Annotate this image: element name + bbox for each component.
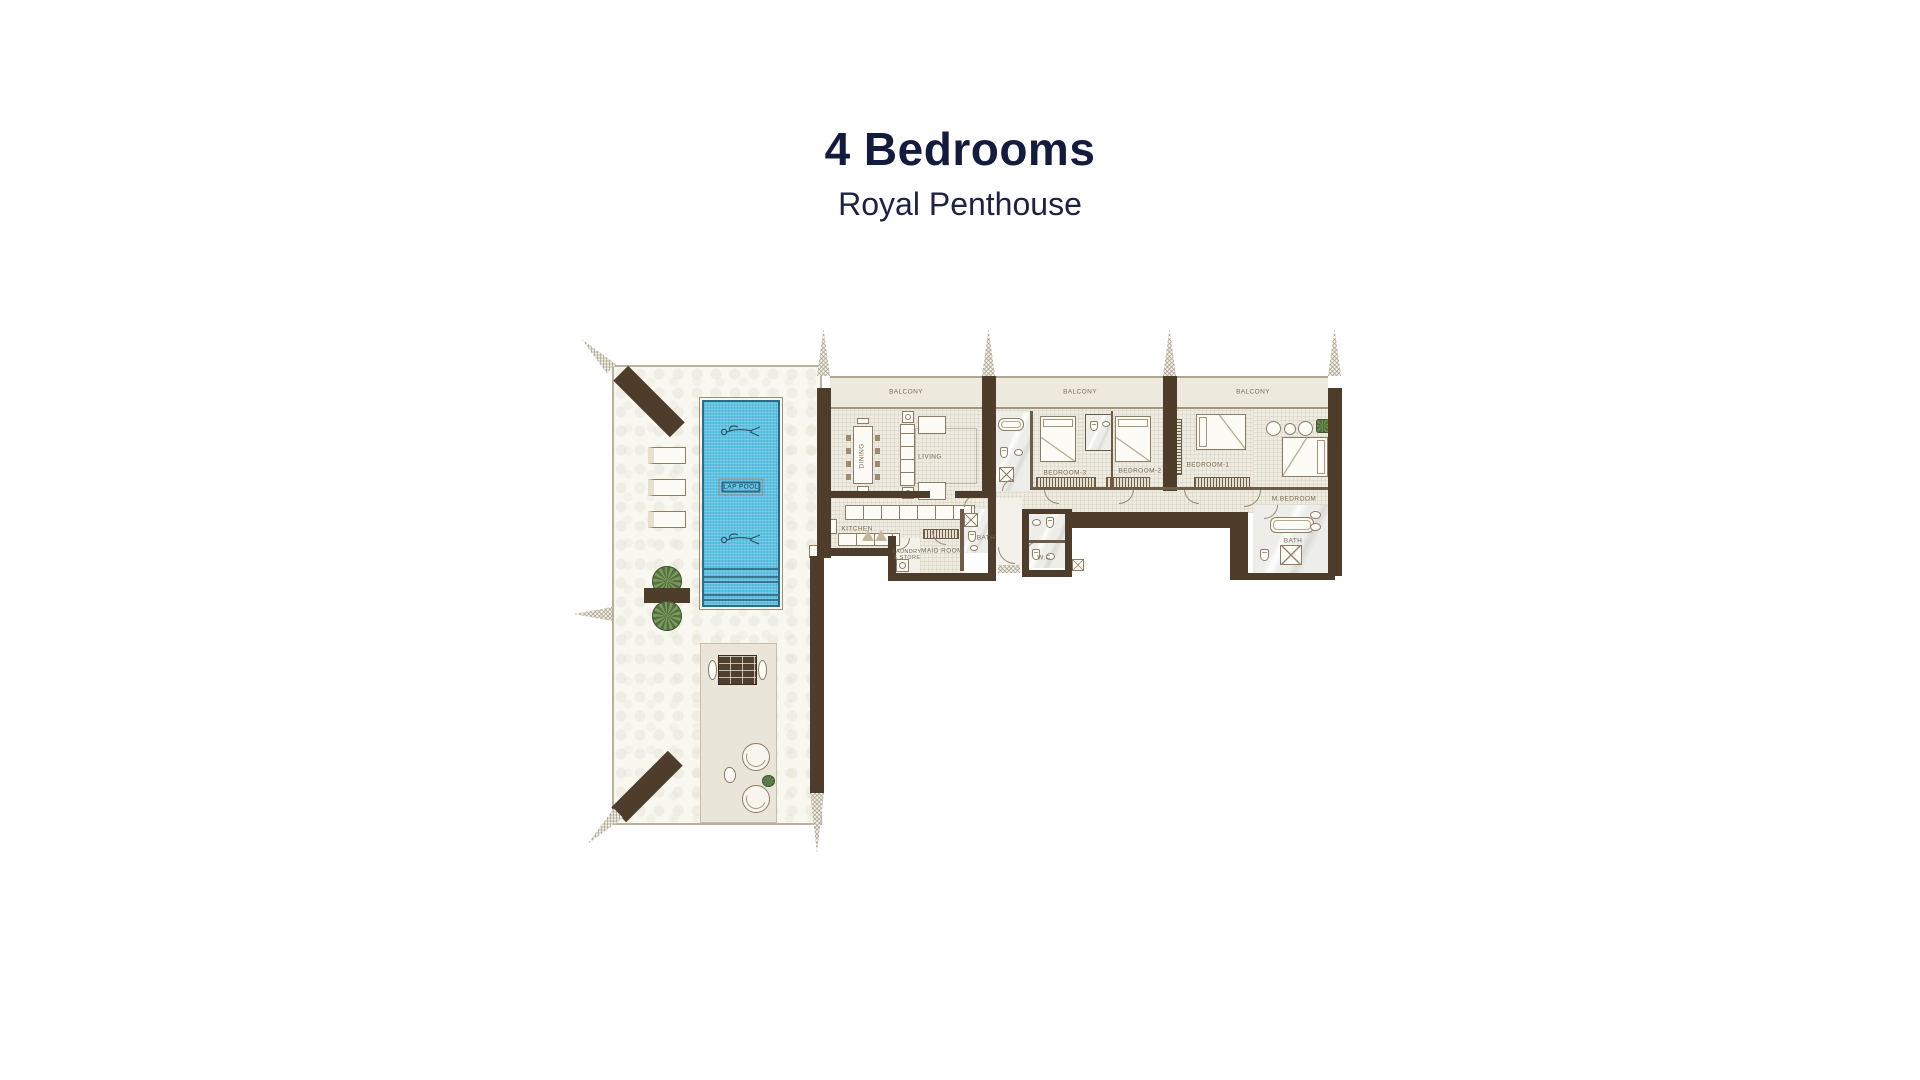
outdoor-dining-table — [718, 655, 757, 685]
swimmer-icon — [716, 530, 764, 550]
label-dining: DINING — [859, 443, 866, 468]
lap-pool — [702, 400, 780, 607]
wall-wc-divider — [1029, 540, 1065, 543]
sink-master — [1310, 511, 1321, 519]
label-wc: W.C — [1037, 555, 1050, 562]
label-bedroom3: BEDROOM-3 — [1044, 470, 1087, 477]
ac-unit-icon — [1072, 559, 1084, 571]
sofa — [900, 424, 915, 486]
wall-right — [1328, 388, 1342, 576]
label-master-bedroom: M.BEDROOM — [1272, 496, 1316, 503]
wall-band — [1065, 512, 1247, 528]
spire-left — [574, 607, 612, 621]
page: 4 Bedrooms Royal Penthouse — [0, 0, 1920, 1080]
spire-top-1 — [817, 329, 830, 376]
spire-top-left — [577, 335, 616, 374]
label-bedroom2: BEDROOM-2 — [1119, 468, 1162, 475]
sink-wc — [1032, 519, 1041, 526]
bed-master — [1282, 437, 1328, 477]
wall-balcony-1 — [982, 376, 996, 491]
shower-master — [1280, 545, 1302, 565]
pool-lane-line — [704, 576, 778, 578]
toilet-bath — [968, 531, 976, 542]
master-round-chair — [1266, 421, 1281, 436]
lamp-table — [902, 411, 914, 423]
wall-bedrooms-bottom — [1030, 487, 1328, 490]
label-balcony-2: BALCONY — [1063, 389, 1097, 396]
label-laundry-store: LAUNDRY & STORE — [892, 549, 922, 561]
kitchen-counter — [845, 505, 975, 520]
dining-chairs — [846, 430, 851, 480]
wall-bar — [1230, 512, 1248, 580]
wall-wc-bottom — [1022, 570, 1072, 577]
sink-ensuite — [1014, 449, 1023, 456]
plant-icon — [652, 601, 682, 631]
pool-lane-line — [704, 581, 778, 583]
spire-top-3 — [1163, 329, 1176, 376]
pool-lane-line — [704, 568, 778, 570]
plant-icon — [762, 775, 775, 787]
shower-room-floor — [1085, 414, 1113, 451]
side-table — [724, 767, 736, 783]
wall-wc-right — [1065, 509, 1072, 577]
label-kitchen: KITCHEN — [841, 526, 872, 533]
sun-lounger — [648, 447, 686, 464]
armchair — [918, 416, 946, 434]
bathtub-master — [1270, 517, 1314, 533]
dining-chairs — [875, 430, 880, 480]
outdoor-chair — [758, 660, 767, 680]
label-master-bath: BATH — [1284, 538, 1302, 545]
label-bedroom1: BEDROOM-1 — [1187, 462, 1230, 469]
lounge-chair — [742, 743, 770, 771]
swimmer-icon — [716, 422, 764, 442]
label-balcony-3: BALCONY — [1236, 389, 1270, 396]
spire-top-4 — [1328, 329, 1341, 376]
bed-bedroom1 — [1196, 414, 1246, 450]
wall-interior-left — [817, 388, 831, 558]
page-subtitle: Royal Penthouse — [0, 186, 1920, 223]
bed-bedroom3 — [1040, 416, 1076, 462]
wall-kitchen-bottom — [817, 548, 892, 556]
pool-lane-line — [704, 599, 778, 601]
sink-shared — [1102, 421, 1110, 427]
lap-pool-label: LAP POOL — [721, 482, 760, 493]
lounge-chair — [742, 785, 770, 813]
wall-master-bottom — [1247, 573, 1335, 580]
toilet-master — [1260, 549, 1269, 561]
wall-bedroom3-left — [1030, 411, 1033, 489]
floor-plan: LAP POOL — [574, 329, 1374, 889]
shower-bath — [964, 513, 978, 527]
page-title: 4 Bedrooms — [0, 122, 1920, 176]
wall-wc-left — [1022, 509, 1029, 577]
wall-block-bottom — [888, 573, 996, 581]
label-balcony-1: BALCONY — [889, 389, 923, 396]
wall-living-bottom — [830, 491, 930, 498]
sun-lounger — [648, 511, 686, 528]
bed-bedroom2 — [1115, 416, 1151, 462]
toilet-wc — [1046, 517, 1054, 528]
label-bath: BATH — [977, 535, 995, 542]
master-side-table — [1284, 423, 1296, 435]
wall-balcony-2 — [1163, 376, 1177, 491]
pool-lane-line — [704, 594, 778, 596]
wall-bath-left — [960, 509, 964, 571]
outdoor-chair — [708, 660, 717, 680]
wall-living-bottom — [955, 491, 996, 498]
bathtub-ensuite — [998, 418, 1024, 431]
master-round-chair — [1298, 421, 1313, 436]
toilet-ensuite — [1000, 447, 1008, 458]
header: 4 Bedrooms Royal Penthouse — [0, 122, 1920, 223]
label-living: LIVING — [918, 454, 942, 461]
sink-bath — [970, 545, 978, 551]
spire-top-2 — [982, 329, 995, 376]
sink-master — [1310, 523, 1321, 531]
entry-threshold — [998, 565, 1020, 573]
label-maid-room: MAID ROOM — [921, 548, 963, 555]
sun-lounger — [648, 479, 686, 496]
spire-bottom-left — [583, 808, 623, 848]
terrace-right-wall — [810, 556, 824, 793]
dining-chair — [857, 418, 869, 424]
toilet-shared — [1090, 421, 1098, 431]
wall-bedroom3-right — [1111, 411, 1113, 489]
